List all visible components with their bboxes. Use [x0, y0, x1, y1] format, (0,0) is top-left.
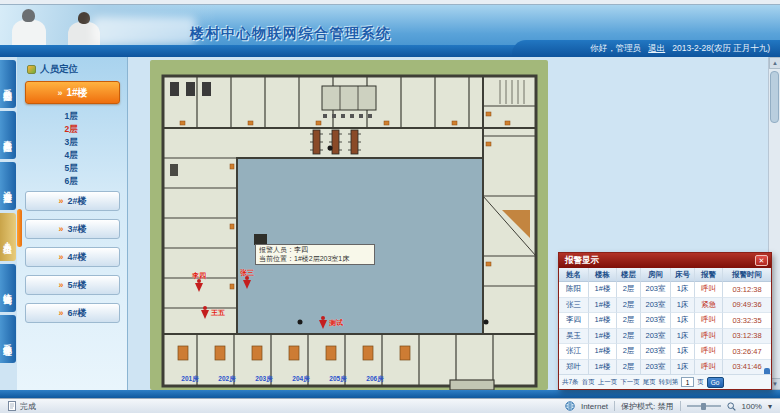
map-tooltip: 报警人员：李四 当前位置：1#楼2层203室1床 [255, 244, 375, 265]
pager-next[interactable]: 下一页 [620, 378, 640, 387]
table-row[interactable]: 陈阳 1#楼 2层 203室 1床 呼叫 03:12:38 [559, 282, 771, 298]
status-left: 完成 [8, 401, 36, 412]
person-marker[interactable]: 张三 [240, 269, 254, 289]
building-button-6[interactable]: » 6#楼 [25, 303, 120, 323]
person-silhouette [78, 12, 90, 24]
cell-time: 03:32:35 [723, 313, 771, 329]
person-silhouette [22, 9, 35, 22]
col-alarm: 报警 [695, 268, 723, 282]
document-icon [8, 401, 16, 411]
personnel-icon [27, 65, 36, 74]
table-row[interactable]: 张三 1#楼 2层 203室 1床 紧急 09:49:36 [559, 298, 771, 314]
dropdown-icon[interactable]: ▾ [768, 402, 772, 411]
alarm-title: 报警显示 [565, 255, 599, 267]
sidebar-panel: 人员定位 » 1#楼 1层 2层 3层 4层 5层 6层 » 2#楼 » 3#楼… [17, 57, 128, 390]
col-room: 房间 [641, 268, 671, 282]
cell-alarm: 呼叫 [695, 344, 723, 360]
alarm-table-header: 姓名 楼栋 楼层 房间 床号 报警 报警时间 [559, 268, 771, 282]
pager-goto-suffix: 页 [697, 378, 704, 387]
cell-building: 1#楼 [589, 313, 617, 329]
floor-plan[interactable]: 报警人员：李四 当前位置：1#楼2层203室1床 李四 张三 王五 测试 201… [150, 60, 548, 390]
footer-blue-bar [0, 390, 780, 398]
date-text: 2013-2-28(农历 正月十九) [672, 43, 770, 55]
zoom-slider[interactable] [687, 405, 721, 407]
application-window: 楼村中心物联网综合管理系统 你好，管理员 退出 2013-2-28(农历 正月十… [0, 0, 780, 413]
cell-bed: 1床 [671, 313, 695, 329]
zoom-slider-thumb[interactable] [701, 403, 706, 410]
cell-floor: 2层 [617, 360, 641, 376]
nav-tab-device-monitor[interactable]: 设备监控 [0, 162, 16, 210]
person-name-label: 王五 [211, 309, 225, 316]
cell-floor: 2层 [617, 313, 641, 329]
status-done-text: 完成 [20, 401, 36, 412]
person-name-label: 张三 [240, 269, 254, 276]
cell-alarm: 呼叫 [695, 360, 723, 376]
logout-link[interactable]: 退出 [648, 43, 665, 55]
person-name-label: 李四 [192, 272, 206, 279]
tooltip-line-1: 报警人员：李四 [259, 246, 371, 255]
table-row[interactable]: 郑叶 1#楼 2层 203室 1床 呼叫 03:41:46 [559, 360, 771, 376]
status-zoom-level[interactable]: 100% [742, 402, 762, 411]
cell-time: 09:49:36 [723, 298, 771, 314]
nav-tab-statistics-query[interactable]: 统计查询 [0, 264, 16, 312]
alarm-pagination: 共7条 首页 上一页 下一页 尾页 转到第 页 Go [559, 374, 771, 389]
cell-building: 1#楼 [589, 298, 617, 314]
arrow-icon: » [58, 252, 63, 262]
room-number-label: 204房 [283, 375, 319, 384]
person-marker[interactable]: 李四 [192, 272, 206, 292]
magnifier-icon [727, 402, 736, 411]
building-label: 1#楼 [66, 86, 87, 100]
arrow-icon: » [58, 196, 63, 206]
arrow-icon: » [57, 88, 62, 98]
cell-name: 吴玉 [559, 329, 589, 345]
status-zone-text: Internet [581, 402, 608, 411]
cell-name: 陈阳 [559, 282, 589, 298]
cell-bed: 1床 [671, 344, 695, 360]
table-row[interactable]: 吴玉 1#楼 2层 203室 1床 呼叫 03:12:38 [559, 329, 771, 345]
building-label: 6#楼 [68, 307, 87, 320]
cell-building: 1#楼 [589, 360, 617, 376]
cell-bed: 1床 [671, 298, 695, 314]
col-building: 楼栋 [589, 268, 617, 282]
cell-room: 203室 [641, 282, 671, 298]
col-alarm-time: 报警时间 [723, 268, 771, 282]
cell-room: 203室 [641, 344, 671, 360]
room-number-label: 202房 [209, 375, 245, 384]
cell-time: 03:12:38 [723, 329, 771, 345]
pager-last[interactable]: 尾页 [643, 378, 656, 387]
header-user-bar: 你好，管理员 退出 2013-2-28(农历 正月十九) [512, 40, 780, 57]
col-name: 姓名 [559, 268, 589, 282]
close-icon[interactable]: ✕ [755, 255, 768, 266]
floor-item-3[interactable]: 3层 [37, 136, 109, 149]
arrow-icon: » [58, 224, 63, 234]
building-button-3[interactable]: » 3#楼 [25, 219, 120, 239]
person-silhouette [12, 20, 46, 46]
alarm-popup: 报警显示 ✕ 姓名 楼栋 楼层 房间 床号 报警 报警时间 陈阳 1#楼 2层 … [558, 252, 772, 390]
cell-room: 203室 [641, 313, 671, 329]
cell-room: 203室 [641, 298, 671, 314]
tooltip-line-2: 当前位置：1#楼2层203室1床 [259, 255, 371, 264]
person-marker[interactable]: 王五 [200, 306, 225, 319]
cell-building: 1#楼 [589, 329, 617, 345]
room-number-label: 203房 [246, 375, 282, 384]
room-number-label: 206房 [357, 375, 393, 384]
nav-tab-system-management[interactable]: 系统管理 [0, 315, 16, 363]
pager-goto-prefix: 转到第 [659, 378, 679, 387]
col-floor: 楼层 [617, 268, 641, 282]
cell-name: 张江 [559, 344, 589, 360]
person-icon [318, 316, 327, 329]
user-greeting: 你好，管理员 [590, 43, 641, 55]
nav-tab-personnel-location[interactable]: 人员定位 [0, 213, 16, 261]
pager-prev[interactable]: 上一页 [598, 378, 618, 387]
table-row[interactable]: 李四 1#楼 2层 203室 1床 呼叫 03:32:35 [559, 313, 771, 329]
cell-name: 张三 [559, 298, 589, 314]
cell-bed: 1床 [671, 360, 695, 376]
floor-item-2-current[interactable]: 2层 [37, 123, 109, 136]
status-separator [614, 401, 615, 411]
cell-bed: 1床 [671, 329, 695, 345]
building-label: 3#楼 [68, 223, 87, 236]
building-button-2[interactable]: » 2#楼 [25, 191, 120, 211]
col-bed: 床号 [671, 268, 695, 282]
table-row[interactable]: 张江 1#楼 2层 203室 1床 呼叫 03:26:47 [559, 344, 771, 360]
floor-list: 1层 2层 3层 4层 5层 6层 [17, 110, 128, 188]
cell-name: 李四 [559, 313, 589, 329]
cell-floor: 2层 [617, 329, 641, 345]
sidebar-title: 人员定位 [40, 63, 78, 76]
cell-time: 03:26:47 [723, 344, 771, 360]
cell-alarm: 呼叫 [695, 313, 723, 329]
nav-tab-real-monitor[interactable]: 真实监控 [0, 111, 16, 159]
page-number-input[interactable] [681, 377, 694, 387]
arrow-icon: » [58, 280, 63, 290]
cell-floor: 2层 [617, 344, 641, 360]
person-icon [195, 279, 204, 292]
person-icon [243, 276, 252, 289]
cell-building: 1#楼 [589, 282, 617, 298]
pager-total: 共7条 [562, 378, 579, 387]
cell-bed: 1床 [671, 282, 695, 298]
scrollbar-thumb[interactable] [770, 71, 779, 123]
browser-status-bar: 完成 Internet 保护模式: 禁用 100% ▾ [0, 398, 780, 413]
sidebar-header: 人员定位 [27, 63, 78, 76]
room-number-label: 205房 [320, 375, 356, 384]
cell-alarm: 呼叫 [695, 329, 723, 345]
room-number-label: 201房 [172, 375, 208, 384]
cell-alarm: 紧急 [695, 298, 723, 314]
status-protected-mode: 保护模式: 禁用 [621, 401, 673, 412]
sidebar-collapse-handle[interactable] [17, 209, 22, 247]
floor-plan-drawing [150, 60, 548, 390]
scroll-up-icon[interactable]: ▲ [769, 57, 780, 69]
app-header: 楼村中心物联网综合管理系统 你好，管理员 退出 2013-2-28(农历 正月十… [0, 5, 780, 57]
cell-floor: 2层 [617, 282, 641, 298]
person-name-label: 测试 [329, 319, 343, 326]
building-button-4[interactable]: » 4#楼 [25, 247, 120, 267]
blur-patch [92, 17, 196, 45]
cell-time: 03:12:38 [723, 282, 771, 298]
pager-first[interactable]: 首页 [582, 378, 595, 387]
building-button-1[interactable]: » 1#楼 [25, 81, 120, 104]
cell-alarm: 呼叫 [695, 282, 723, 298]
alarm-titlebar[interactable]: 报警显示 ✕ [559, 253, 771, 268]
building-label: 4#楼 [68, 251, 87, 264]
cell-floor: 2层 [617, 298, 641, 314]
person-marker[interactable]: 测试 [318, 316, 343, 329]
building-button-5[interactable]: » 5#楼 [25, 275, 120, 295]
cell-name: 郑叶 [559, 360, 589, 376]
building-label: 2#楼 [68, 195, 87, 208]
page-title: 楼村中心物联网综合管理系统 [190, 25, 392, 43]
cell-room: 203室 [641, 329, 671, 345]
floor-item-1[interactable]: 1层 [37, 110, 109, 123]
status-separator [680, 401, 681, 411]
floor-item-5[interactable]: 5层 [37, 162, 109, 175]
go-button[interactable]: Go [707, 377, 724, 388]
cell-room: 203室 [641, 360, 671, 376]
nav-tab-system-monitor[interactable]: 系统监控 [0, 60, 16, 108]
floor-item-4[interactable]: 4层 [37, 149, 109, 162]
cell-building: 1#楼 [589, 344, 617, 360]
status-right: Internet 保护模式: 禁用 100% ▾ [565, 401, 772, 412]
floor-item-6[interactable]: 6层 [37, 175, 109, 188]
globe-icon [565, 401, 575, 411]
arrow-icon: » [58, 308, 63, 318]
person-icon [200, 306, 209, 319]
building-label: 5#楼 [68, 279, 87, 292]
